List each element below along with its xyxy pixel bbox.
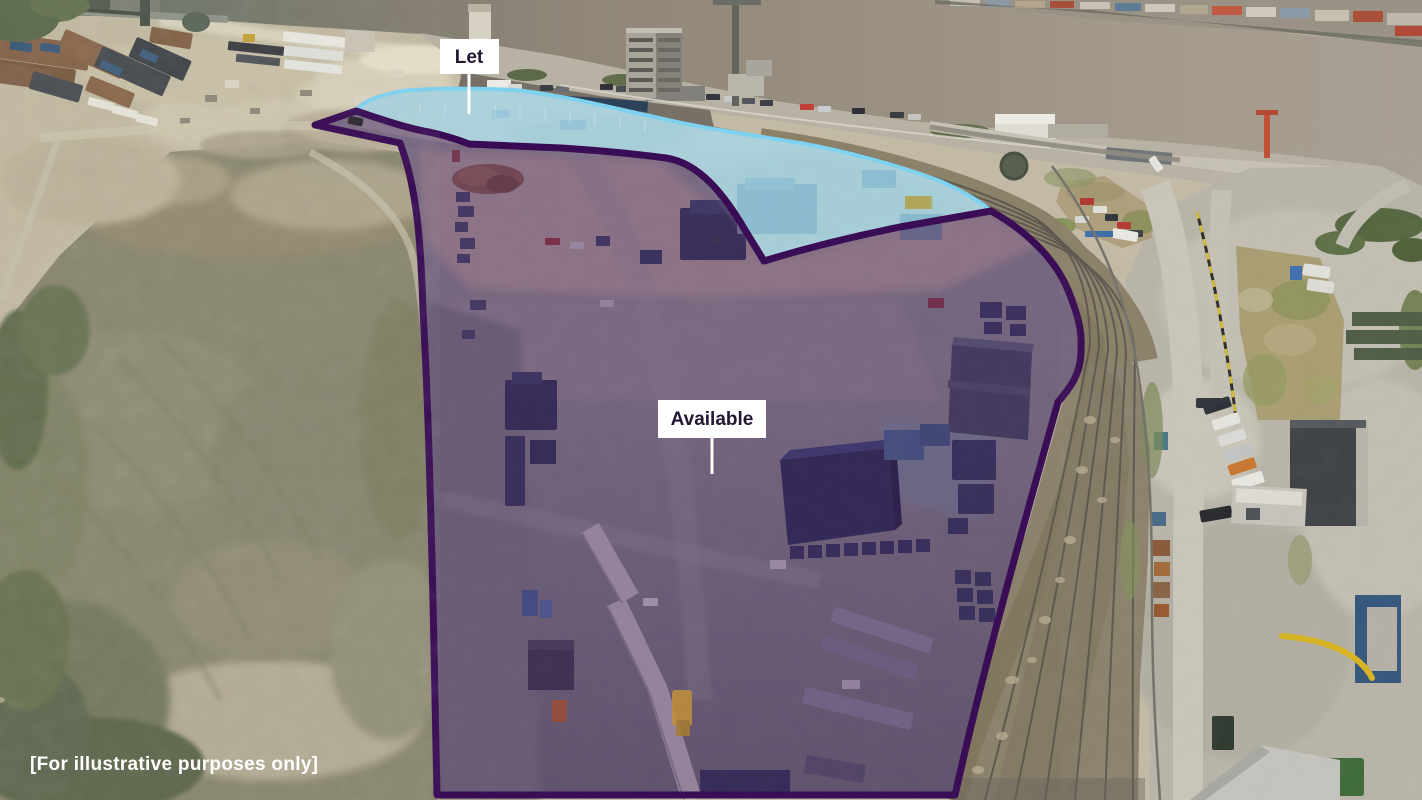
svg-text:Let: Let [455,47,484,68]
svg-text:[For illustrative purposes onl: [For illustrative purposes only] [30,754,318,775]
svg-text:Available: Available [671,409,754,430]
